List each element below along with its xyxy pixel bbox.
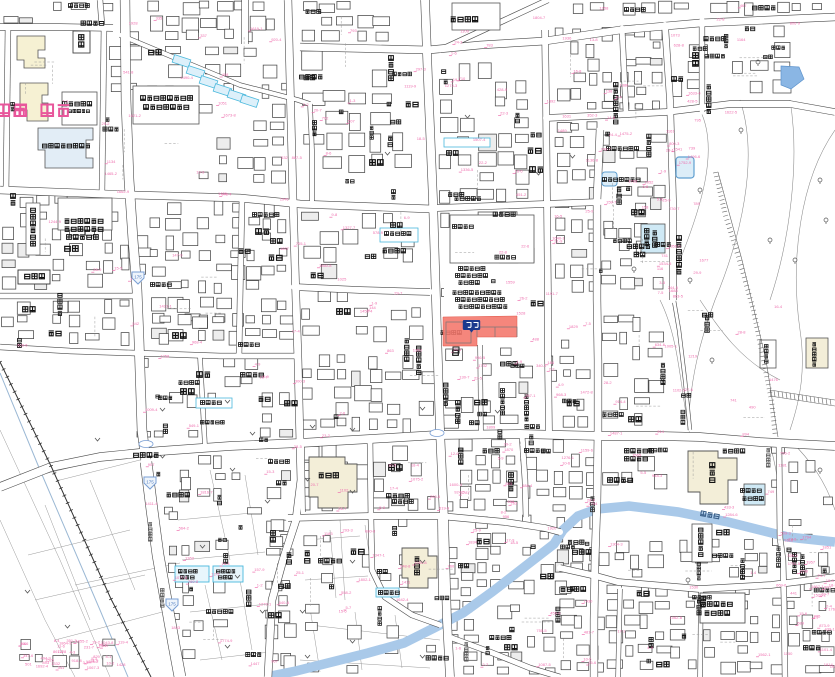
svg-text:1181: 1181: [778, 463, 787, 468]
svg-text:459-6: 459-6: [550, 611, 561, 616]
svg-text:749: 749: [768, 489, 775, 494]
svg-text:267-1: 267-1: [525, 393, 536, 398]
svg-text:1159-6: 1159-6: [581, 448, 594, 453]
svg-text:1-6: 1-6: [451, 51, 458, 56]
svg-text:19-6: 19-6: [20, 641, 29, 646]
svg-text:1677: 1677: [699, 257, 709, 262]
svg-text:297-3: 297-3: [416, 67, 427, 72]
svg-text:1009-4: 1009-4: [145, 407, 158, 412]
svg-text:16-8: 16-8: [573, 68, 582, 73]
svg-text:20-7: 20-7: [311, 482, 320, 487]
svg-text:3-5: 3-5: [659, 280, 666, 285]
svg-text:23-2: 23-2: [322, 433, 331, 438]
svg-text:21-9: 21-9: [90, 658, 99, 663]
svg-text:1489: 1489: [558, 128, 568, 133]
svg-text:28-5: 28-5: [294, 444, 303, 449]
svg-text:29-9: 29-9: [693, 270, 702, 275]
svg-text:1430: 1430: [584, 599, 594, 604]
svg-text:863-5: 863-5: [673, 294, 684, 299]
svg-text:451-2: 451-2: [516, 192, 527, 197]
svg-text:1-3: 1-3: [350, 98, 357, 103]
svg-text:29-7: 29-7: [394, 291, 403, 296]
svg-text:1783: 1783: [628, 178, 638, 183]
svg-text:22-8: 22-8: [499, 250, 508, 255]
svg-text:755-5: 755-5: [536, 628, 547, 633]
svg-text:501: 501: [25, 661, 32, 666]
svg-text:244-5: 244-5: [668, 285, 679, 290]
svg-text:1935: 1935: [830, 664, 835, 669]
svg-text:1565: 1565: [632, 453, 642, 458]
svg-text:1621-2: 1621-2: [128, 113, 141, 118]
svg-text:119-4: 119-4: [118, 640, 129, 645]
svg-text:1164: 1164: [737, 37, 746, 42]
svg-text:1276-1: 1276-1: [562, 455, 575, 460]
svg-text:1600-4: 1600-4: [449, 482, 462, 487]
svg-text:1946: 1946: [280, 196, 290, 201]
svg-text:920-4: 920-4: [271, 37, 282, 42]
svg-text:1816-7: 1816-7: [200, 490, 213, 495]
svg-text:924-5: 924-5: [454, 489, 465, 494]
svg-text:509-3: 509-3: [781, 531, 792, 536]
svg-text:148-4: 148-4: [221, 192, 232, 197]
svg-text:2-2: 2-2: [549, 366, 556, 371]
svg-text:1411-4: 1411-4: [145, 501, 158, 506]
svg-text:1692-4: 1692-4: [36, 664, 49, 669]
svg-text:28-2: 28-2: [604, 380, 613, 385]
svg-text:29-2: 29-2: [504, 442, 513, 447]
svg-text:4-7: 4-7: [813, 615, 820, 620]
svg-text:1284-6: 1284-6: [725, 512, 738, 517]
svg-text:15-6: 15-6: [799, 611, 808, 616]
svg-text:16-5: 16-5: [554, 214, 563, 219]
svg-text:335: 335: [156, 15, 163, 20]
svg-text:144: 144: [369, 305, 376, 310]
svg-text:640-8: 640-8: [279, 600, 290, 605]
svg-text:1102-5: 1102-5: [673, 388, 686, 393]
svg-text:28-9: 28-9: [587, 498, 596, 503]
svg-text:1109: 1109: [460, 29, 469, 34]
svg-text:16-6: 16-6: [515, 169, 524, 174]
svg-text:1428: 1428: [117, 662, 127, 667]
svg-text:138: 138: [606, 89, 613, 94]
svg-text:7-5: 7-5: [585, 321, 592, 326]
svg-text:1073: 1073: [671, 32, 681, 37]
svg-text:1102: 1102: [340, 487, 349, 492]
svg-text:1411: 1411: [402, 579, 411, 584]
svg-text:17-4: 17-4: [292, 328, 301, 333]
svg-text:1642-4: 1642-4: [396, 597, 409, 602]
svg-text:1802-1: 1802-1: [358, 577, 371, 582]
svg-text:608-6: 608-6: [17, 342, 28, 347]
svg-text:1619-1: 1619-1: [250, 26, 263, 31]
svg-text:1851: 1851: [822, 545, 832, 550]
svg-text:1119-9: 1119-9: [404, 84, 417, 89]
svg-text:968-3: 968-3: [556, 392, 567, 397]
svg-text:578-9: 578-9: [373, 230, 384, 235]
svg-text:1752-9: 1752-9: [679, 160, 692, 165]
svg-text:968-4: 968-4: [192, 340, 203, 345]
svg-text:157-9: 157-9: [254, 567, 265, 572]
svg-text:1136-8: 1136-8: [586, 157, 599, 162]
svg-text:340-1: 340-1: [536, 363, 547, 368]
svg-text:17-1: 17-1: [617, 629, 626, 634]
svg-text:741: 741: [661, 253, 668, 258]
svg-text:730-7: 730-7: [669, 206, 680, 211]
svg-text:25-6: 25-6: [588, 660, 597, 665]
svg-text:25-9: 25-9: [663, 198, 672, 203]
svg-text:1864-9: 1864-9: [59, 641, 72, 646]
svg-text:22-2: 22-2: [479, 160, 488, 165]
svg-text:24-4: 24-4: [609, 132, 618, 137]
svg-text:337: 337: [200, 33, 207, 38]
svg-text:507: 507: [348, 119, 355, 124]
svg-text:26-7: 26-7: [338, 506, 347, 511]
svg-text:1392: 1392: [547, 99, 557, 104]
svg-text:260-5: 260-5: [430, 494, 441, 499]
svg-text:116: 116: [657, 266, 664, 271]
svg-text:147-9: 147-9: [172, 253, 183, 258]
svg-text:1134: 1134: [107, 159, 116, 164]
svg-text:1363: 1363: [185, 556, 195, 561]
svg-text:532: 532: [281, 155, 288, 160]
svg-text:300-3: 300-3: [295, 379, 306, 384]
svg-text:628-8: 628-8: [674, 43, 685, 48]
svg-text:1025: 1025: [337, 277, 347, 282]
svg-text:263: 263: [511, 500, 518, 505]
svg-text:1062-8: 1062-8: [670, 615, 683, 620]
svg-text:2-4: 2-4: [826, 604, 833, 609]
svg-text:8-2: 8-2: [501, 510, 508, 515]
svg-text:347-6: 347-6: [23, 653, 34, 658]
svg-text:3-2: 3-2: [303, 102, 310, 107]
svg-text:1191-7: 1191-7: [546, 291, 559, 296]
svg-text:1936: 1936: [562, 35, 572, 40]
svg-text:8-6: 8-6: [326, 151, 333, 156]
svg-text:5-9: 5-9: [379, 505, 386, 510]
svg-text:1530: 1530: [689, 585, 699, 590]
svg-text:13-8: 13-8: [590, 37, 599, 42]
svg-text:2-7: 2-7: [482, 662, 489, 667]
svg-text:887-5: 887-5: [292, 155, 303, 160]
svg-text:680-8: 680-8: [365, 528, 376, 533]
svg-text:1559: 1559: [506, 280, 516, 285]
svg-text:1855-2: 1855-2: [75, 638, 88, 643]
svg-text:1183: 1183: [324, 531, 333, 536]
svg-text:184: 184: [547, 360, 554, 365]
svg-text:5-9: 5-9: [498, 456, 505, 461]
svg-text:22-3: 22-3: [500, 111, 509, 116]
svg-text:564-2: 564-2: [179, 526, 190, 531]
svg-text:956: 956: [503, 514, 510, 519]
svg-text:541-8: 541-8: [123, 70, 134, 75]
svg-text:1244-9: 1244-9: [49, 219, 62, 224]
svg-text:806-9: 806-9: [790, 21, 801, 26]
svg-text:793: 793: [350, 28, 357, 33]
svg-text:1562-1: 1562-1: [758, 652, 771, 657]
svg-text:1150: 1150: [784, 651, 793, 656]
svg-text:1421-1: 1421-1: [159, 303, 172, 308]
svg-text:967: 967: [271, 658, 278, 663]
svg-text:1-9: 1-9: [660, 168, 667, 173]
svg-text:1347-1: 1347-1: [372, 553, 385, 558]
svg-text:441: 441: [790, 591, 797, 596]
svg-text:1043-8: 1043-8: [101, 640, 114, 645]
svg-text:26-2: 26-2: [520, 296, 529, 301]
svg-text:907: 907: [148, 462, 155, 467]
svg-text:4-9: 4-9: [647, 645, 654, 650]
svg-text:1-6: 1-6: [455, 645, 462, 650]
svg-text:18-5: 18-5: [417, 136, 426, 141]
svg-text:231-7: 231-7: [84, 644, 95, 649]
svg-text:689: 689: [797, 621, 804, 626]
svg-text:1067-3: 1067-3: [87, 665, 100, 670]
svg-text:15-3: 15-3: [266, 469, 275, 474]
svg-text:7-3: 7-3: [62, 98, 69, 103]
svg-text:1541: 1541: [673, 147, 683, 152]
svg-text:14-6: 14-6: [607, 115, 616, 120]
svg-text:1386: 1386: [620, 82, 630, 87]
svg-text:1075-2: 1075-2: [411, 476, 424, 481]
svg-text:1507-4: 1507-4: [473, 137, 486, 142]
svg-text:1834: 1834: [468, 540, 478, 545]
svg-text:20-7: 20-7: [314, 108, 323, 113]
svg-text:549-1: 549-1: [189, 423, 200, 428]
svg-text:12-6: 12-6: [451, 451, 460, 456]
svg-text:1804-7: 1804-7: [533, 15, 546, 20]
svg-text:669-6: 669-6: [776, 583, 787, 588]
svg-text:1077-8: 1077-8: [175, 575, 188, 580]
svg-text:28-9: 28-9: [93, 267, 102, 272]
svg-text:741: 741: [730, 398, 737, 403]
svg-text:789: 789: [693, 201, 700, 206]
svg-text:1279-1: 1279-1: [259, 601, 272, 606]
svg-text:25-9: 25-9: [585, 208, 594, 213]
svg-text:1281-8: 1281-8: [414, 560, 427, 565]
svg-text:1534-5: 1534-5: [659, 261, 672, 266]
svg-text:936-5: 936-5: [475, 355, 486, 360]
svg-text:352-3: 352-3: [587, 112, 598, 117]
svg-text:783: 783: [486, 42, 493, 47]
svg-text:1487-1: 1487-1: [610, 430, 623, 435]
svg-text:467: 467: [740, 3, 747, 8]
svg-text:15-3: 15-3: [222, 561, 231, 566]
svg-text:6-9: 6-9: [404, 215, 411, 220]
svg-text:293-3: 293-3: [343, 528, 354, 533]
svg-text:22-6: 22-6: [521, 244, 530, 249]
svg-text:1327-7: 1327-7: [343, 225, 356, 230]
svg-text:760: 760: [448, 564, 455, 569]
svg-text:21-9: 21-9: [554, 239, 563, 244]
svg-text:1837: 1837: [280, 246, 290, 251]
svg-text:1298: 1298: [799, 569, 809, 574]
svg-text:705-1: 705-1: [296, 241, 307, 246]
svg-text:1957: 1957: [806, 560, 816, 565]
svg-text:1472-8: 1472-8: [580, 390, 593, 395]
svg-text:548-8: 548-8: [400, 563, 411, 568]
svg-text:769-8: 769-8: [188, 579, 199, 584]
svg-text:1-9: 1-9: [516, 359, 523, 364]
svg-text:1101-4: 1101-4: [820, 647, 833, 652]
svg-text:18-4: 18-4: [411, 463, 420, 468]
svg-text:1496-6: 1496-6: [688, 154, 701, 159]
svg-text:1860-8: 1860-8: [319, 263, 332, 268]
svg-text:4-3: 4-3: [70, 650, 77, 655]
svg-text:159-7: 159-7: [606, 200, 617, 205]
svg-text:1087-5: 1087-5: [538, 662, 551, 667]
svg-text:1631: 1631: [562, 114, 572, 119]
svg-text:914: 914: [657, 429, 664, 434]
svg-text:22-8: 22-8: [717, 17, 726, 22]
svg-text:894: 894: [742, 431, 749, 436]
svg-text:408: 408: [222, 72, 229, 77]
svg-text:1052: 1052: [645, 179, 655, 184]
svg-text:1829: 1829: [569, 324, 579, 329]
svg-text:175: 175: [146, 480, 154, 485]
svg-text:243-7: 243-7: [601, 146, 612, 151]
svg-text:428-9: 428-9: [497, 87, 508, 92]
svg-text:1928: 1928: [129, 20, 139, 25]
svg-text:15-7: 15-7: [260, 375, 269, 380]
svg-text:1476: 1476: [769, 377, 779, 382]
svg-text:739: 739: [689, 146, 696, 151]
svg-text:439-1: 439-1: [825, 626, 835, 631]
svg-text:7-5: 7-5: [658, 290, 665, 295]
svg-text:1475-2: 1475-2: [620, 131, 633, 136]
svg-text:490: 490: [749, 405, 756, 410]
svg-text:23-8: 23-8: [788, 537, 797, 542]
svg-text:1332: 1332: [51, 661, 61, 666]
svg-text:481-7: 481-7: [584, 630, 595, 635]
svg-text:488-4: 488-4: [522, 483, 533, 488]
svg-text:1732: 1732: [478, 363, 488, 368]
svg-text:558-2: 558-2: [341, 590, 352, 595]
svg-text:25-9: 25-9: [473, 528, 482, 533]
svg-text:10-5: 10-5: [388, 462, 397, 467]
svg-text:1774-9: 1774-9: [220, 638, 233, 643]
svg-text:710: 710: [459, 76, 466, 81]
svg-text:1870: 1870: [504, 447, 514, 452]
svg-text:1465-2: 1465-2: [105, 171, 118, 176]
svg-text:1751-5: 1751-5: [788, 561, 801, 566]
svg-text:1273-3: 1273-3: [445, 83, 458, 88]
svg-text:428-5: 428-5: [687, 98, 698, 103]
svg-text:1161: 1161: [666, 129, 675, 134]
svg-text:339-2: 339-2: [787, 553, 798, 558]
svg-text:15-5: 15-5: [114, 266, 123, 271]
svg-text:12-5: 12-5: [211, 572, 220, 577]
svg-text:1662-9: 1662-9: [117, 189, 130, 194]
svg-text:28-8: 28-8: [738, 329, 747, 334]
svg-text:4-9: 4-9: [255, 362, 262, 367]
svg-text:1490-4: 1490-4: [180, 75, 193, 80]
svg-text:1-9: 1-9: [371, 300, 378, 305]
svg-text:4-1: 4-1: [106, 654, 113, 659]
svg-text:1843: 1843: [171, 625, 181, 630]
svg-text:1-4: 1-4: [750, 570, 757, 575]
svg-text:433-3: 433-3: [724, 505, 735, 510]
svg-text:175: 175: [134, 275, 142, 280]
svg-text:702: 702: [322, 116, 329, 121]
svg-text:542: 542: [132, 321, 139, 326]
svg-text:1920: 1920: [547, 526, 557, 531]
svg-text:6-4: 6-4: [616, 95, 623, 100]
svg-text:175: 175: [168, 602, 176, 607]
svg-text:619-9: 619-9: [439, 506, 450, 511]
svg-text:1809: 1809: [486, 424, 496, 429]
svg-text:10-6: 10-6: [562, 460, 571, 465]
svg-text:29-3: 29-3: [453, 347, 462, 352]
svg-text:17-4: 17-4: [390, 486, 399, 491]
svg-text:1528: 1528: [516, 310, 526, 315]
svg-text:1336-5: 1336-5: [461, 167, 474, 172]
svg-text:1633-4: 1633-4: [688, 90, 701, 95]
svg-text:1350: 1350: [413, 347, 423, 352]
svg-text:883: 883: [505, 481, 512, 486]
svg-text:1356-5: 1356-5: [668, 244, 681, 249]
svg-text:1219: 1219: [688, 354, 698, 359]
svg-text:795: 795: [694, 118, 701, 123]
svg-text:25-1: 25-1: [296, 570, 305, 575]
svg-text:19-9: 19-9: [196, 169, 205, 174]
svg-text:918-8: 918-8: [72, 658, 83, 663]
svg-text:1005-1: 1005-1: [665, 344, 678, 349]
svg-text:1794: 1794: [802, 535, 812, 540]
svg-text:27-6: 27-6: [685, 387, 694, 392]
svg-text:1520-2: 1520-2: [813, 593, 826, 598]
svg-text:1258: 1258: [160, 354, 170, 359]
svg-text:24-7: 24-7: [818, 573, 827, 578]
svg-text:18-5: 18-5: [510, 540, 519, 545]
svg-text:900: 900: [824, 584, 831, 589]
svg-text:948-3: 948-3: [652, 473, 663, 478]
svg-text:1-2: 1-2: [257, 582, 264, 587]
svg-text:516: 516: [657, 196, 664, 201]
svg-text:10-2: 10-2: [106, 660, 115, 665]
svg-text:863: 863: [387, 348, 394, 353]
svg-text:1304-3: 1304-3: [610, 542, 623, 547]
svg-text:130-7: 130-7: [459, 375, 470, 380]
svg-text:488: 488: [532, 336, 539, 341]
svg-text:766-2: 766-2: [780, 451, 791, 456]
svg-text:158: 158: [642, 205, 649, 210]
svg-text:5-7: 5-7: [346, 605, 353, 610]
svg-text:1673-8: 1673-8: [223, 112, 236, 117]
svg-text:2-6: 2-6: [340, 410, 347, 415]
svg-text:1447: 1447: [251, 661, 261, 666]
svg-text:4-9: 4-9: [558, 382, 565, 387]
svg-text:22-5: 22-5: [474, 376, 483, 381]
svg-text:1622-5: 1622-5: [725, 110, 738, 115]
svg-text:914-4: 914-4: [615, 399, 626, 404]
svg-text:1258: 1258: [599, 6, 609, 11]
svg-text:5-5: 5-5: [640, 470, 647, 475]
svg-text:24-3: 24-3: [454, 40, 463, 45]
svg-text:1867-1: 1867-1: [811, 584, 824, 589]
svg-text:16-4: 16-4: [774, 304, 783, 309]
svg-text:800-3: 800-3: [669, 141, 680, 146]
svg-text:1128: 1128: [58, 649, 67, 654]
svg-text:9-8: 9-8: [331, 212, 338, 217]
svg-text:29-2: 29-2: [102, 121, 111, 126]
svg-text:1051: 1051: [218, 101, 228, 106]
